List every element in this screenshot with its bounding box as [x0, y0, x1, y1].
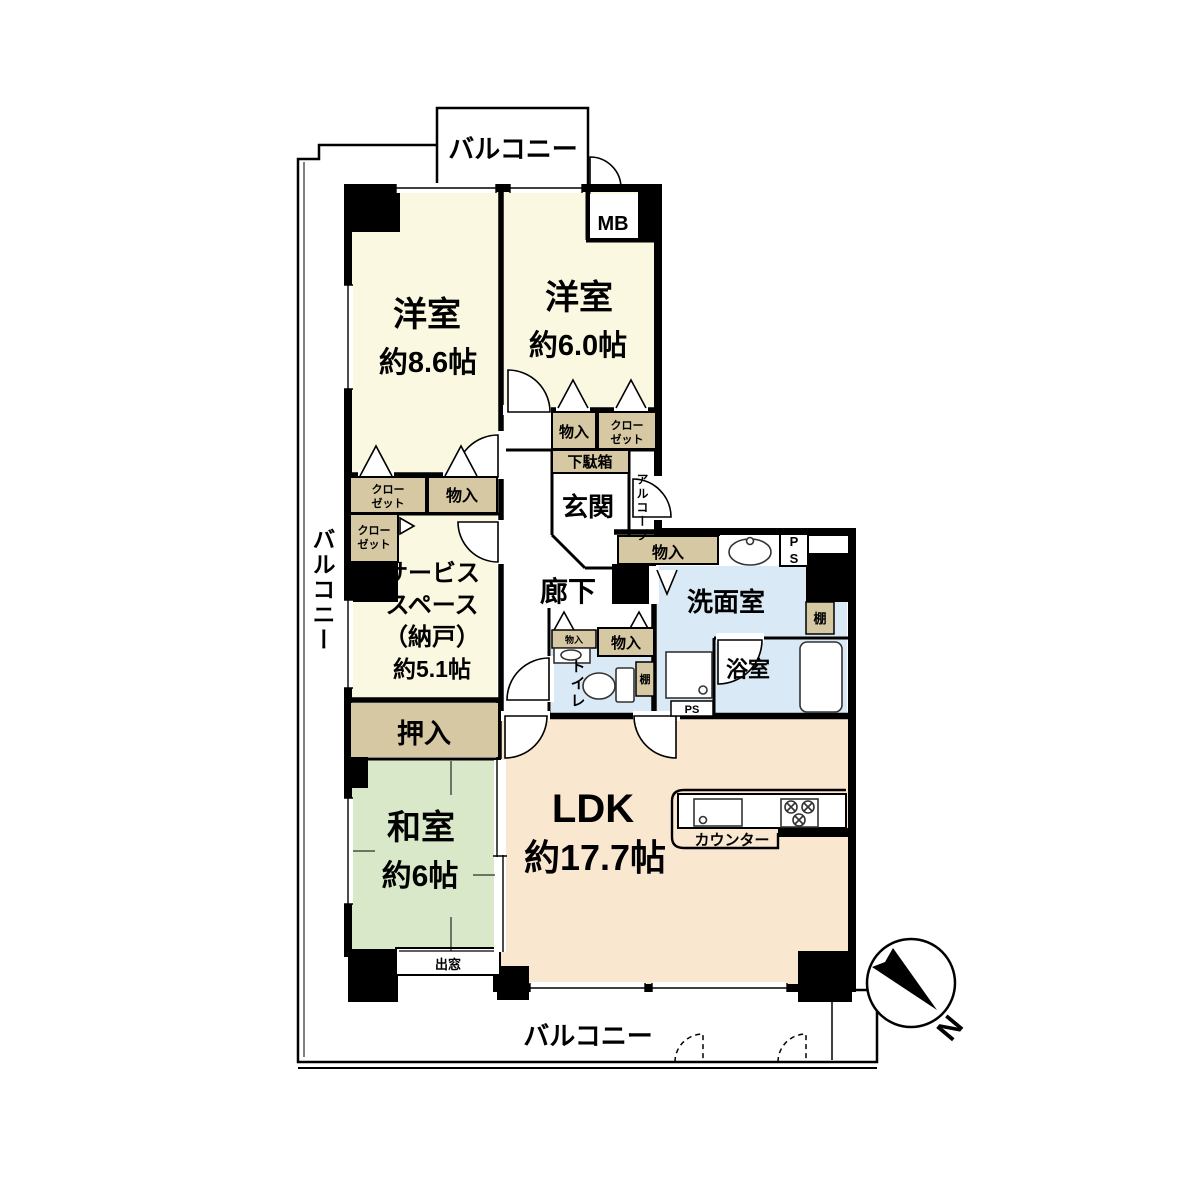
svg-text:棚: 棚 [813, 611, 826, 626]
svg-text:下駄箱: 下駄箱 [567, 453, 612, 471]
room-japanese-floor [351, 759, 497, 953]
shelf-box: 棚 [806, 602, 834, 634]
window [530, 982, 645, 993]
floorplan-canvas: 出窓 [0, 0, 1200, 1200]
svg-text:物入: 物入 [611, 634, 641, 652]
compass: N [867, 939, 970, 1047]
monoire-box: 物入 [598, 628, 654, 656]
svg-text:棚: 棚 [640, 672, 651, 686]
monoire-box: 物入 [552, 412, 596, 449]
pillar [798, 951, 852, 1002]
bathtub [800, 642, 842, 712]
service-l3: （納戸） [384, 623, 480, 651]
svg-text:押入: 押入 [397, 719, 451, 749]
service-l2: スペース [385, 592, 478, 619]
sink-drain [700, 817, 707, 824]
service-l1: サービス [384, 560, 480, 587]
japanese-size: 約6帖 [382, 860, 459, 893]
monoire-box-small: 物入 [552, 630, 596, 648]
bay-window: 出窓 [396, 948, 500, 975]
window [510, 183, 582, 193]
washroom-label: 洗面室 [687, 587, 765, 617]
pillar [638, 191, 658, 240]
mb-label: MB [597, 213, 628, 235]
balcony-hatch-door-1 [675, 1034, 703, 1062]
closet-box: クロー ゼット [598, 412, 656, 449]
svg-text:ゼット: ゼット [358, 537, 391, 551]
balcony-hatch-door-2 [778, 1034, 806, 1062]
pillar [497, 966, 529, 1000]
window [396, 183, 496, 193]
ps-box: PS [780, 534, 808, 568]
bathroom-label: 浴室 [726, 657, 770, 682]
ldk-name: LDK [552, 787, 634, 831]
ldk-size: 約17.7帖 [524, 837, 666, 878]
counter-label: カウンター [694, 832, 769, 849]
closet-box: クロー ゼット [350, 477, 426, 513]
monoire-box: 物入 [618, 536, 718, 564]
western1-size: 約8.6帖 [379, 345, 477, 379]
hallway-label: 廊下 [540, 575, 596, 607]
pillar [348, 950, 398, 1002]
oshiire-box: 押入 [351, 703, 498, 757]
balcony-partition-door [590, 157, 621, 188]
svg-text:物入: 物入 [565, 634, 583, 645]
western1-name: 洋室 [393, 295, 461, 334]
monoire-box: 物入 [428, 477, 497, 513]
svg-text:PS: PS [787, 534, 802, 568]
shelf-box: 棚 [636, 662, 654, 696]
svg-text:クロー: クロー [372, 483, 405, 496]
svg-text:物入: 物入 [446, 486, 478, 505]
svg-text:ゼット: ゼット [372, 496, 405, 510]
svg-text:物入: 物入 [652, 543, 684, 562]
balcony-bottom-label: バルコニー [523, 1021, 652, 1051]
window [343, 600, 353, 688]
bay-window-label: 出窓 [435, 957, 461, 972]
mb-box: MB [590, 194, 638, 238]
getabako-box: 下駄箱 [552, 450, 629, 473]
pillar [348, 188, 400, 232]
washing-machine-pan [666, 652, 712, 698]
closet-box: クロー ゼット [350, 514, 398, 562]
window [343, 285, 353, 389]
window [652, 982, 787, 993]
balcony-left-label: バルコニー [309, 528, 335, 653]
pillar [806, 553, 852, 602]
pillar [348, 752, 368, 788]
svg-text:クロー: クロー [611, 419, 644, 432]
western2-name: 洋室 [545, 278, 613, 317]
toilet-label: トイレ [569, 659, 586, 710]
japanese-name: 和室 [387, 808, 455, 847]
svg-text:ゼット: ゼット [611, 432, 644, 446]
svg-text:クロー: クロー [358, 524, 391, 537]
floorplan-svg: 出窓 [0, 0, 1200, 1200]
svg-text:PS: PS [685, 704, 700, 716]
service-l4: 約5.1帖 [393, 656, 471, 682]
stove [781, 799, 818, 827]
window [343, 798, 353, 904]
svg-text:物入: 物入 [559, 423, 589, 441]
ps-box: PS [671, 701, 713, 716]
western2-size: 約6.0帖 [529, 328, 627, 362]
vanity-sink [720, 535, 780, 566]
alcove-label: アルコープ [635, 473, 649, 543]
kitchen-wall-bar [778, 828, 848, 837]
balcony-top-label: バルコニー [448, 134, 577, 164]
sliding-door-japanese [493, 760, 507, 952]
genkan-label: 玄関 [562, 492, 614, 522]
